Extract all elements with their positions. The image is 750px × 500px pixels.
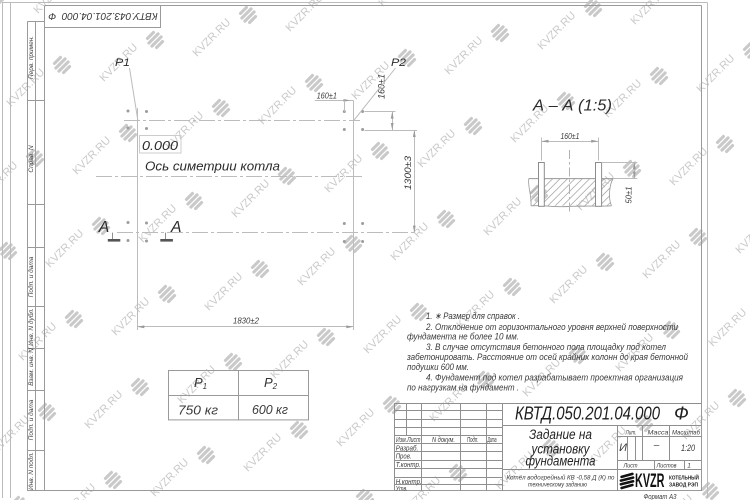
svg-text:KVZR.RU: KVZR.RU <box>722 0 750 2</box>
svg-text:KVZR.RU: KVZR.RU <box>482 196 525 239</box>
svg-text:KVZR.RU: KVZR.RU <box>230 178 273 221</box>
svg-text:ЗАВОД РЭП: ЗАВОД РЭП <box>669 483 698 489</box>
svg-text:КВТД.050.201.04.000: КВТД.050.201.04.000 <box>515 403 661 424</box>
svg-text:1830±2: 1830±2 <box>233 316 259 326</box>
svg-text:Масса: Масса <box>648 429 669 436</box>
svg-text:А: А <box>170 219 181 236</box>
svg-text:KVZR.RU: KVZR.RU <box>149 457 192 500</box>
svg-text:KVZR.RU: KVZR.RU <box>443 35 486 78</box>
svg-text:Изм.Лист: Изм.Лист <box>396 437 421 444</box>
svg-text:160±1: 160±1 <box>377 74 387 99</box>
svg-text:Пров.: Пров. <box>396 453 412 460</box>
svg-text:техническому заданию: техническому заданию <box>528 480 587 488</box>
svg-text:Лит.: Лит. <box>625 429 637 436</box>
svg-text:А – А (1:5): А – А (1:5) <box>532 98 612 115</box>
svg-text:Масштаб: Масштаб <box>672 428 700 436</box>
svg-text:Перв. примен.: Перв. примен. <box>28 36 35 79</box>
svg-text:Ось симетрии котла: Ось симетрии котла <box>145 159 280 174</box>
svg-text:KVZR.RU: KVZR.RU <box>416 128 459 171</box>
svg-text:KVZR.RU: KVZR.RU <box>269 339 312 382</box>
svg-text:1. ∗ Размер для справок .: 1. ∗ Размер для справок . <box>426 311 520 321</box>
svg-text:Подп. и дата: Подп. и дата <box>27 256 35 297</box>
svg-text:KVZR.RU: KVZR.RU <box>110 296 153 339</box>
svg-text:Задание на: Задание на <box>529 427 592 442</box>
svg-text:KVZR.RU: KVZR.RU <box>296 246 339 289</box>
svg-text:KVZR.RU: KVZR.RU <box>44 228 87 271</box>
svg-text:KVZR.RU: KVZR.RU <box>362 314 405 357</box>
svg-text:KVZR: KVZR <box>635 470 665 492</box>
svg-text:KVZR.RU: KVZR.RU <box>536 10 579 53</box>
svg-text:1:20: 1:20 <box>681 443 696 454</box>
svg-text:Ф: Ф <box>674 403 689 424</box>
svg-text:KVZR.RU: KVZR.RU <box>695 53 738 96</box>
svg-text:Инв. N подл.: Инв. N подл. <box>27 452 35 490</box>
svg-text:KVZR.RU: KVZR.RU <box>335 407 378 450</box>
svg-text:А: А <box>98 219 109 236</box>
svg-text:Взам. инв. N: Взам. инв. N <box>28 348 35 386</box>
svg-text:KVZR.RU: KVZR.RU <box>17 321 60 364</box>
svg-text:Лист: Лист <box>623 462 638 469</box>
svg-text:Справ. N: Справ. N <box>28 145 35 173</box>
svg-text:забетонировать. Расстояние от: забетонировать. Расстояние от осей крайн… <box>406 352 688 362</box>
svg-text:KVZR.RU: KVZR.RU <box>377 0 420 9</box>
svg-text:Формат А3: Формат А3 <box>644 492 678 500</box>
svg-text:KVZR.RU: KVZR.RU <box>323 153 366 196</box>
svg-text:KVZR.RU: KVZR.RU <box>668 146 711 189</box>
svg-text:1300±3: 1300±3 <box>403 156 413 190</box>
svg-text:KVZR.RU: KVZR.RU <box>707 307 750 350</box>
svg-text:Утв.: Утв. <box>395 486 408 493</box>
svg-text:Подп.: Подп. <box>467 436 479 444</box>
svg-text:KVZR.RU: KVZR.RU <box>71 135 114 178</box>
svg-text:Инв. N дубл.: Инв. N дубл. <box>27 308 35 346</box>
svg-text:160±1: 160±1 <box>317 91 338 101</box>
svg-text:–: – <box>653 440 660 451</box>
svg-text:КОТЕЛЬНЫЙ: КОТЕЛЬНЫЙ <box>669 474 699 482</box>
svg-text:подушки 600 мм.: подушки 600 мм. <box>407 362 469 372</box>
svg-text:750 кг: 750 кг <box>178 404 218 418</box>
svg-text:1: 1 <box>687 462 691 469</box>
svg-text:N докум.: N докум. <box>432 436 455 444</box>
svg-text:Листов: Листов <box>656 462 677 469</box>
svg-text:2. Отклонение от горизонтальн: 2. Отклонение от горизонтального уровня … <box>425 322 678 332</box>
svg-text:И: И <box>619 442 627 454</box>
svg-text:Т.контр.: Т.контр. <box>396 462 421 469</box>
svg-text:4. Фундамент под котел разраб: 4. Фундамент под котел разрабатывает про… <box>426 372 683 382</box>
svg-text:Р1: Р1 <box>115 57 130 69</box>
svg-text:KVZR.RU: KVZR.RU <box>83 389 126 432</box>
svg-text:3. В случае отсутствия бетонн: 3. В случае отсутствия бетонного пола пл… <box>426 342 667 352</box>
svg-text:фундамента: фундамента <box>526 454 596 469</box>
svg-text:0.000: 0.000 <box>142 138 179 153</box>
svg-text:фундамента не более 10 мм.: фундамента не более 10 мм. <box>407 332 519 342</box>
svg-text:Подп. и дата: Подп. и дата <box>27 399 35 440</box>
svg-text:50±1: 50±1 <box>624 186 634 203</box>
svg-text:по нагрузкам на фундамент .: по нагрузкам на фундамент . <box>407 383 519 393</box>
svg-text:KVZR.RU: KVZR.RU <box>203 271 246 314</box>
svg-text:KVZR.RU: KVZR.RU <box>629 0 672 27</box>
svg-text:KVZR.RU: KVZR.RU <box>242 432 285 475</box>
svg-text:КВТУ.043.201.04.000 Ф: КВТУ.043.201.04.000 Ф <box>48 10 157 21</box>
svg-text:160±1: 160±1 <box>561 131 580 141</box>
svg-text:KVZR.RU: KVZR.RU <box>389 221 432 264</box>
svg-text:KVZR.RU: KVZR.RU <box>191 17 234 60</box>
svg-text:Дата: Дата <box>487 437 497 444</box>
svg-text:KVZR.RU: KVZR.RU <box>734 214 750 257</box>
svg-text:KVZR.RU: KVZR.RU <box>641 239 684 282</box>
svg-text:Котёл водогрейный КВ -0,58 Д (: Котёл водогрейный КВ -0,58 Д (К) по <box>507 474 615 482</box>
svg-text:600 кг: 600 кг <box>252 403 288 417</box>
svg-text:KVZR.RU: KVZR.RU <box>548 264 591 307</box>
svg-text:KVZR.RU: KVZR.RU <box>746 468 750 500</box>
svg-text:Р2: Р2 <box>391 57 406 69</box>
svg-text:Разраб.: Разраб. <box>396 444 419 452</box>
